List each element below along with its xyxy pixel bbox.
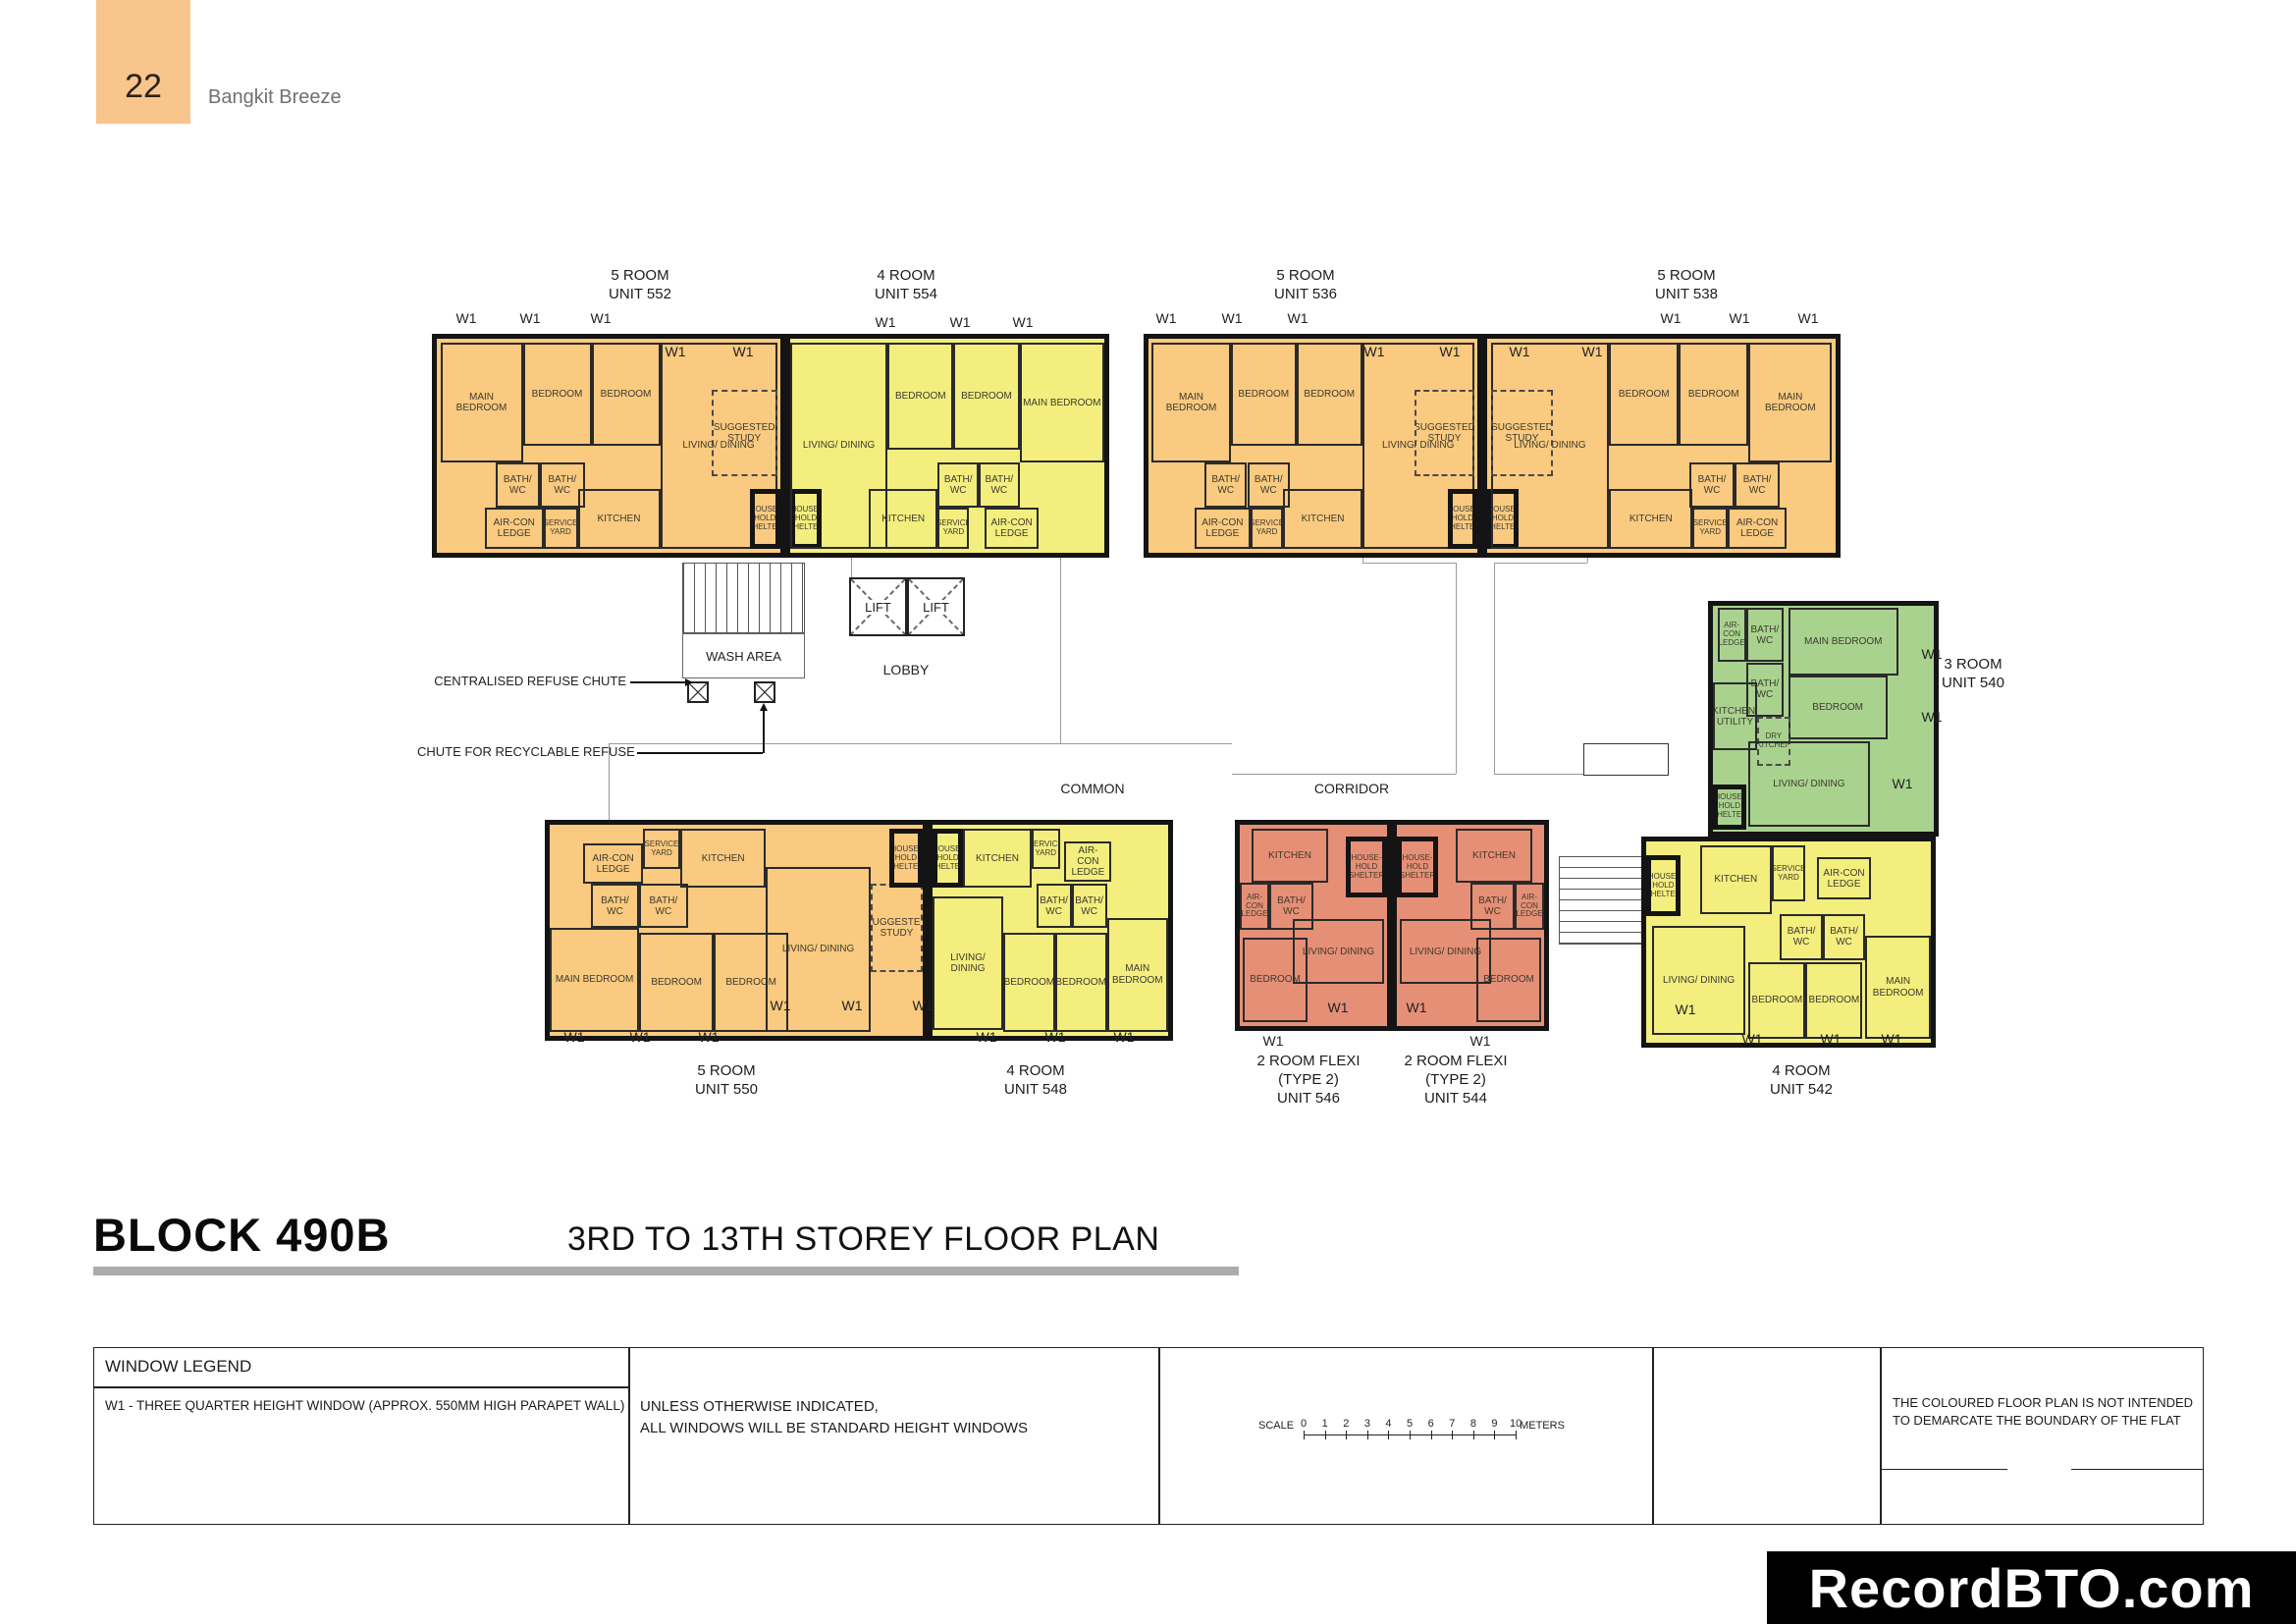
window-mark: W1	[1922, 709, 1943, 725]
unit-label-554: 4 ROOMUNIT 554	[875, 267, 937, 304]
corridor-recess	[1583, 743, 1669, 776]
unit-label-line: UNIT 540	[1942, 675, 2004, 693]
room-suggested-study: SUGGESTED STUDY	[1415, 390, 1473, 475]
scale-bar: SCALE 012345678910 METERS	[1258, 1418, 1565, 1439]
recyclable-chute-annotation: CHUTE FOR RECYCLABLE REFUSE	[417, 744, 635, 759]
room-bath-wc: BATH/ WC	[1689, 462, 1735, 508]
room-kitchen: KITCHEN	[1283, 489, 1362, 549]
room-house-hold-shelter: HOUSE- HOLD SHELTER	[1397, 837, 1438, 897]
room-bedroom: BEDROOM	[1297, 343, 1362, 446]
room-house-hold-shelter: HOUSE- HOLD SHELTER	[1346, 837, 1387, 897]
room-kitchen: KITCHEN	[1456, 829, 1532, 883]
watermark-text: RecordBTO.com	[1809, 1556, 2255, 1620]
room-main-bedroom: MAIN BEDROOM	[1865, 936, 1931, 1039]
scale-unit: METERS	[1520, 1420, 1565, 1432]
room-air-con-ledge: AIR-CON LEDGE	[985, 508, 1038, 548]
room-bath-wc: BATH/ WC	[639, 884, 687, 928]
leader-line	[763, 709, 765, 753]
room-bedroom: BEDROOM	[1679, 343, 1748, 446]
room-bedroom: BEDROOM	[1476, 938, 1541, 1022]
room-bedroom: BEDROOM	[1789, 676, 1888, 738]
unit-label-line: (TYPE 2)	[1256, 1071, 1360, 1090]
corridor-line	[1494, 563, 1587, 564]
unit-546: KITCHENAIR- CON LEDGEBATH/ WCHOUSE- HOLD…	[1235, 820, 1392, 1031]
unit-label-line: UNIT 546	[1256, 1090, 1360, 1109]
room-air-con-ledge: AIR- CON LEDGE	[1515, 883, 1544, 929]
unit-label-line: UNIT 538	[1655, 286, 1718, 304]
table-divider	[93, 1386, 628, 1388]
leader-arrow	[760, 703, 768, 711]
unit-label-line: UNIT 552	[609, 286, 671, 304]
table-divider	[1880, 1469, 2007, 1470]
window-mark: W1	[1821, 1031, 1842, 1047]
window-mark: W1	[977, 1029, 997, 1045]
unit-label-line: UNIT 544	[1404, 1090, 1507, 1109]
room-bedroom: BEDROOM	[1243, 938, 1308, 1022]
room-kitchen: KITCHEN	[1700, 845, 1772, 914]
windows-note-line2: ALL WINDOWS WILL BE STANDARD HEIGHT WIND…	[640, 1418, 1028, 1439]
room-air-con-ledge: AIR-CON LEDGE	[485, 508, 544, 548]
window-mark: W1	[1013, 314, 1034, 330]
table-divider	[1652, 1347, 1654, 1525]
room-main-bedroom: MAIN BEDROOM	[1020, 343, 1104, 462]
room-service-yard: SERVICE YARD	[1772, 845, 1806, 901]
floor-plan-page: 22 Bangkit Breeze WASH AREA LIFT	[0, 0, 2296, 1624]
wash-area-label: WASH AREA	[706, 649, 781, 664]
window-mark: W1	[1582, 344, 1603, 359]
unit-label-line: UNIT 554	[875, 286, 937, 304]
unit-label-line: (TYPE 2)	[1404, 1071, 1507, 1090]
room-bath-wc: BATH/ WC	[1072, 884, 1107, 928]
unit-label-line: 5 ROOM	[1655, 267, 1718, 286]
window-mark: W1	[1045, 1029, 1066, 1045]
table-divider	[1880, 1347, 1882, 1525]
window-mark: W1	[1893, 776, 1913, 791]
room-bath-wc: BATH/ WC	[1780, 914, 1823, 960]
window-mark: W1	[1114, 1029, 1135, 1045]
room-bedroom: BEDROOM	[639, 933, 714, 1032]
unit-label-line: 4 ROOM	[1770, 1062, 1833, 1081]
room-bath-wc: BATH/ WC	[937, 462, 979, 508]
corridor-line	[609, 743, 1232, 744]
watermark: RecordBTO.com	[1767, 1551, 2296, 1624]
unit-label-line: UNIT 542	[1770, 1081, 1833, 1100]
room-suggested-study: SUGGESTED STUDY	[712, 390, 777, 475]
lift-label: LIFT	[863, 600, 893, 615]
common-label: COMMON	[1060, 781, 1124, 796]
unit-label-544: 2 ROOM FLEXI(TYPE 2)UNIT 544	[1404, 1053, 1507, 1108]
leader-line	[637, 752, 763, 754]
scale-ticks: 012345678910	[1304, 1418, 1516, 1439]
lift-1: LIFT	[849, 577, 907, 636]
unit-label-line: UNIT 548	[1004, 1081, 1067, 1100]
room-bedroom: BEDROOM	[523, 343, 592, 446]
room-main-bedroom: MAIN BEDROOM	[1789, 608, 1899, 676]
window-mark: W1	[1156, 310, 1177, 326]
room-main-bedroom: MAIN BEDROOM	[441, 343, 523, 462]
window-mark: W1	[630, 1029, 651, 1045]
boundary-note-line2: TO DEMARCATE THE BOUNDARY OF THE FLAT	[1893, 1412, 2193, 1430]
leader-arrow	[685, 678, 693, 686]
room-kitchen: KITCHEN	[1609, 489, 1692, 549]
window-mark: W1	[1328, 1000, 1349, 1015]
room-air-con-ledge: AIR-CON LEDGE	[1064, 841, 1111, 882]
staircase-right	[1559, 856, 1645, 945]
block-title: BLOCK 490B	[93, 1208, 391, 1262]
room-house-hold-shelter: HOUSE- HOLD SHELTER	[933, 829, 963, 888]
room-bath-wc: BATH/ WC	[1204, 462, 1248, 508]
corridor-line	[1494, 563, 1495, 774]
unit-label-538: 5 ROOMUNIT 538	[1655, 267, 1718, 304]
room-main-bedroom: MAIN BEDROOM	[1107, 918, 1168, 1032]
room-bedroom: BEDROOM	[1609, 343, 1679, 446]
window-mark: W1	[564, 1029, 585, 1045]
room-suggested-study: SUGGESTED STUDY	[871, 884, 923, 972]
wash-area: WASH AREA	[682, 633, 805, 678]
table-divider	[1158, 1347, 1160, 1525]
title-underline	[93, 1267, 1239, 1275]
lift-label: LIFT	[921, 600, 951, 615]
unit-label-550: 5 ROOMUNIT 550	[695, 1062, 758, 1100]
room-service-yard: SERVICE YARD	[1251, 508, 1284, 548]
scale-label: SCALE	[1258, 1420, 1294, 1432]
room-suggested-study: SUGGESTED STUDY	[1491, 390, 1554, 475]
room-house-hold-shelter: HOUSE- HOLD SHELTER	[889, 829, 923, 888]
unit-label-540: 3 ROOMUNIT 540	[1942, 656, 2004, 693]
unit-label-line: UNIT 536	[1274, 286, 1337, 304]
room-bath-wc: BATH/ WC	[1823, 914, 1866, 960]
room-bedroom: BEDROOM	[1748, 962, 1805, 1039]
unit-label-line: 2 ROOM FLEXI	[1256, 1053, 1360, 1071]
room-air-con-ledge: AIR- CON LEDGE	[1240, 883, 1269, 929]
room-house-hold-shelter: HOUSE- HOLD SHELTER	[1448, 489, 1477, 549]
unit-548: HOUSE- HOLD SHELTERKITCHENSERVICE YARDAI…	[928, 820, 1173, 1041]
corridor-label: CORRIDOR	[1314, 781, 1389, 796]
room-bath-wc: BATH/ WC	[1735, 462, 1780, 508]
room-main-bedroom: MAIN BEDROOM	[1748, 343, 1832, 462]
room-living-dining: LIVING/ DINING	[933, 896, 1003, 1029]
corridor-line	[1232, 774, 1456, 775]
room-service-yard: SERVICE YARD	[1032, 829, 1060, 869]
unit-label-548: 4 ROOMUNIT 548	[1004, 1062, 1067, 1100]
window-legend-title: WINDOW LEGEND	[105, 1357, 251, 1377]
window-mark: W1	[1222, 310, 1243, 326]
window-mark: W1	[1510, 344, 1530, 359]
corridor-line	[1456, 563, 1457, 774]
unit-554: HOUSE- HOLD SHELTERLIVING/ DININGBEDROOM…	[785, 334, 1109, 558]
room-bath-wc: BATH/ WC	[979, 462, 1020, 508]
room-bath-wc: BATH/ WC	[496, 462, 541, 508]
room-bath-wc: BATH/ WC	[1746, 608, 1784, 662]
window-mark: W1	[842, 998, 863, 1013]
legend-table	[93, 1347, 2204, 1525]
recyclable-chute-box	[754, 681, 775, 703]
boundary-note: THE COLOURED FLOOR PLAN IS NOT INTENDED …	[1893, 1394, 2193, 1429]
leader-line	[630, 681, 685, 683]
unit-538: HOUSE- HOLD SHELTERLIVING/ DININGSUGGEST…	[1482, 334, 1841, 558]
unit-label-line: UNIT 550	[695, 1081, 758, 1100]
window-mark: W1	[1470, 1033, 1491, 1049]
room-main-bedroom: MAIN BEDROOM	[550, 928, 639, 1031]
window-mark: W1	[733, 344, 754, 359]
room-bath-wc: BATH/ WC	[1037, 884, 1072, 928]
window-mark: W1	[591, 310, 612, 326]
window-mark: W1	[1730, 310, 1750, 326]
window-mark: W1	[1661, 310, 1682, 326]
staircase	[682, 563, 805, 633]
unit-label-line: 3 ROOM	[1942, 656, 2004, 675]
unit-label-546: 2 ROOM FLEXI(TYPE 2)UNIT 546	[1256, 1053, 1360, 1108]
storey-title: 3RD TO 13TH STOREY FLOOR PLAN	[567, 1220, 1159, 1259]
unit-label-line: 5 ROOM	[695, 1062, 758, 1081]
window-mark: W1	[913, 998, 934, 1013]
windows-note-line1: UNLESS OTHERWISE INDICATED,	[640, 1396, 1028, 1418]
room-kitchen: KITCHEN	[869, 489, 937, 549]
room-bedroom: BEDROOM	[1231, 343, 1297, 446]
room-service-yard: SERVICE YARD	[1692, 508, 1728, 548]
room-bedroom: BEDROOM	[1055, 933, 1107, 1032]
room-bedroom: BEDROOM	[887, 343, 953, 450]
unit-label-line: 2 ROOM FLEXI	[1404, 1053, 1507, 1071]
unit-536: MAIN BEDROOMBEDROOMBEDROOMLIVING/ DINING…	[1144, 334, 1482, 558]
window-mark: W1	[1798, 310, 1819, 326]
window-mark: W1	[1676, 1001, 1696, 1017]
room-house-hold-shelter: HOUSE- HOLD SHELTER	[1713, 785, 1746, 830]
room-service-yard: SERVICE YARD	[643, 829, 680, 869]
corridor-line	[1060, 558, 1061, 743]
unit-label-line: 5 ROOM	[609, 267, 671, 286]
room-air-con-ledge: AIR-CON LEDGE	[1817, 857, 1871, 899]
unit-label-line: 4 ROOM	[875, 267, 937, 286]
window-mark: W1	[699, 1029, 720, 1045]
lift-2: LIFT	[907, 577, 965, 636]
lobby-label: LOBBY	[883, 662, 930, 677]
room-service-yard: SERVICE YARD	[937, 508, 969, 548]
corridor-line	[1362, 563, 1456, 564]
window-mark: W1	[771, 998, 791, 1013]
room-bedroom: BEDROOM	[1805, 962, 1862, 1039]
table-divider	[2071, 1469, 2204, 1470]
room-kitchen: KITCHEN	[963, 829, 1032, 888]
unit-label-552: 5 ROOMUNIT 552	[609, 267, 671, 304]
room-bedroom: BEDROOM	[592, 343, 661, 446]
window-mark: W1	[876, 314, 896, 330]
room-bedroom: BEDROOM	[953, 343, 1019, 450]
window-mark: W1	[950, 314, 971, 330]
window-legend-item: W1 - THREE QUARTER HEIGHT WINDOW (APPROX…	[105, 1398, 624, 1413]
room-air-con-ledge: AIR- CON LEDGE	[1718, 608, 1746, 662]
boundary-note-line1: THE COLOURED FLOOR PLAN IS NOT INTENDED	[1893, 1394, 2193, 1412]
room-bath-wc: BATH/ WC	[591, 884, 639, 928]
table-divider	[628, 1347, 630, 1525]
window-mark: W1	[1407, 1000, 1427, 1015]
room-living-dining: LIVING/ DINING	[1652, 926, 1746, 1035]
window-mark: W1	[456, 310, 477, 326]
room-house-hold-shelter: HOUSE- HOLD SHELTER	[750, 489, 781, 549]
room-living-dining: LIVING/ DINING	[1748, 741, 1870, 827]
unit-552: MAIN BEDROOMBEDROOMBEDROOMLIVING/ DINING…	[432, 334, 785, 558]
window-mark: W1	[1364, 344, 1385, 359]
room-bedroom: BEDROOM	[1003, 933, 1055, 1032]
room-air-con-ledge: AIR-CON LEDGE	[1195, 508, 1251, 548]
unit-label-536: 5 ROOMUNIT 536	[1274, 267, 1337, 304]
window-mark: W1	[1742, 1031, 1763, 1047]
window-mark: W1	[1440, 344, 1461, 359]
window-mark: W1	[1263, 1033, 1284, 1049]
window-mark: W1	[1922, 646, 1943, 662]
unit-label-line: 5 ROOM	[1274, 267, 1337, 286]
room-main-bedroom: MAIN BEDROOM	[1151, 343, 1230, 462]
unit-label-542: 4 ROOMUNIT 542	[1770, 1062, 1833, 1100]
windows-note: UNLESS OTHERWISE INDICATED, ALL WINDOWS …	[640, 1396, 1028, 1439]
room-kitchen-utility: KITCHEN/ UTILITY	[1713, 682, 1757, 750]
room-kitchen: KITCHEN	[578, 489, 661, 549]
room-house-hold-shelter: HOUSE- HOLD SHELTER	[1646, 855, 1681, 916]
room-kitchen: KITCHEN	[680, 829, 766, 888]
room-kitchen: KITCHEN	[1252, 829, 1328, 883]
refuse-chute-annotation: CENTRALISED REFUSE CHUTE	[412, 674, 626, 688]
room-service-yard: SERVICE YARD	[544, 508, 578, 548]
window-mark: W1	[666, 344, 686, 359]
unit-label-line: 4 ROOM	[1004, 1062, 1067, 1081]
window-mark: W1	[1288, 310, 1308, 326]
room-air-con-ledge: AIR-CON LEDGE	[1728, 508, 1787, 548]
window-mark: W1	[1882, 1031, 1902, 1047]
unit-540: AIR- CON LEDGEBATH/ WCMAIN BEDROOMBATH/ …	[1708, 601, 1939, 837]
corridor-line	[1494, 774, 1583, 775]
window-mark: W1	[520, 310, 541, 326]
room-air-con-ledge: AIR-CON LEDGE	[583, 843, 643, 884]
unit-550: AIR-CON LEDGESERVICE YARDKITCHENBATH/ WC…	[545, 820, 928, 1041]
